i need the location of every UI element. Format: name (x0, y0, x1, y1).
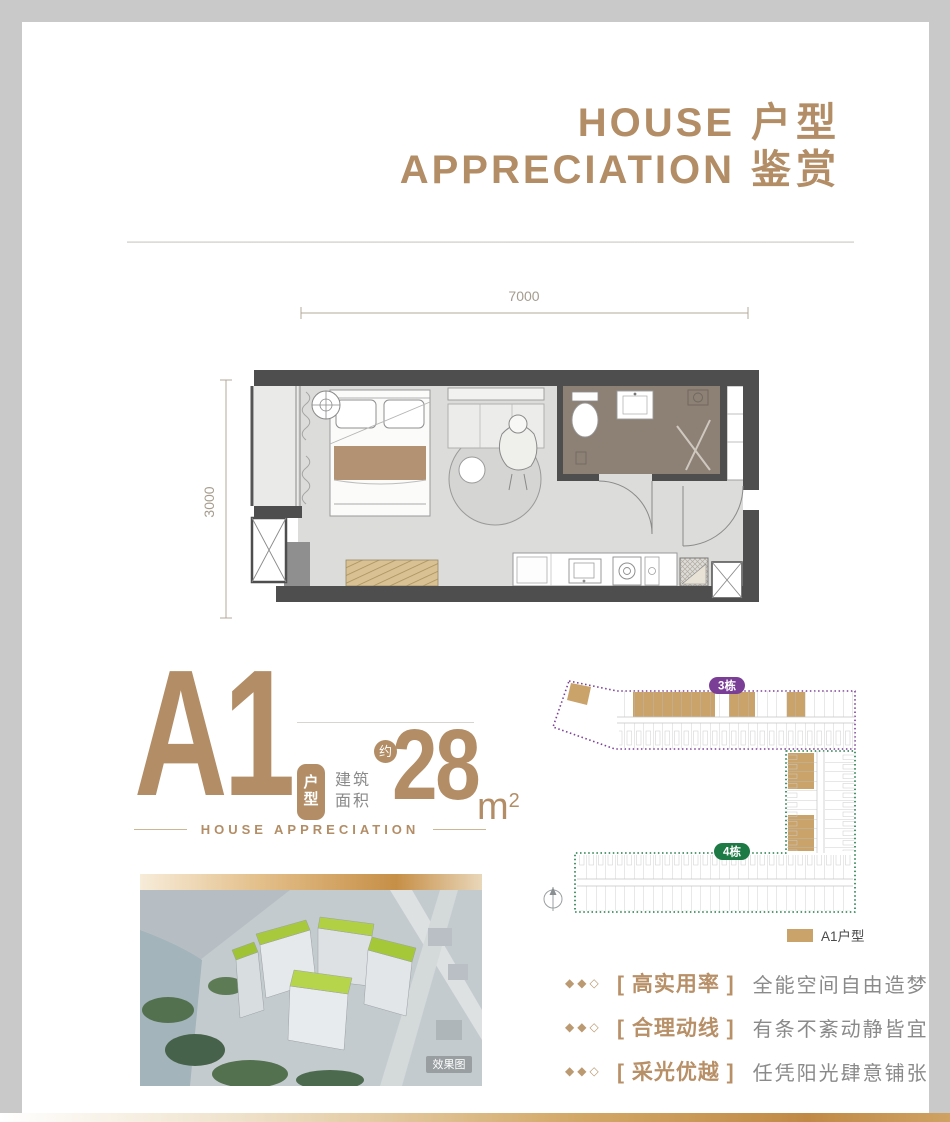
diamond-bullets-icon: ◆◆◇ (565, 1064, 609, 1078)
side-table (459, 457, 485, 483)
unit-tagline: HOUSE APPRECIATION (134, 822, 486, 837)
feature-desc: 有条不紊动静皆宜 (753, 1013, 929, 1042)
tagline-line-left (134, 829, 187, 830)
area-value: 28 (392, 710, 478, 820)
aerial-render-image: 效果图 (140, 874, 482, 1086)
floorplan-drawing: 7000 3000 (180, 274, 825, 624)
brochure-page: HOUSE户型 APPRECIATION鉴赏 (22, 22, 929, 1122)
bathroom-sink (617, 391, 653, 419)
siteplan-drawing: 3栋 4栋 A1户型 (539, 667, 950, 957)
dimension-top (301, 307, 748, 319)
watermark-text: 效果图 (433, 1057, 466, 1071)
building-4 (288, 970, 352, 1050)
legend-label: A1户型 (821, 928, 865, 944)
page-canvas: HOUSE户型 APPRECIATION鉴赏 (0, 0, 950, 1122)
render-gold-bar (140, 874, 482, 890)
feature-desc: 任凭阳光肆意铺张 (753, 1057, 929, 1086)
unit-type-badge: 户型 (297, 764, 325, 820)
ac-platform (252, 518, 286, 582)
tagline-text: HOUSE APPRECIATION (201, 822, 420, 837)
diamond-bullets-icon: ◆◆◇ (565, 1020, 609, 1034)
bed-blanket (334, 446, 426, 480)
kitchen-counter (513, 553, 677, 586)
toilet (572, 392, 598, 437)
feature-row-2: ◆◆◇ [ 合理动线 ] 有条不紊动静皆宜 (565, 1012, 929, 1042)
feature-tag: [ 采光优越 ] (617, 1056, 735, 1086)
unit-type-badge-label: 户型 (303, 774, 319, 808)
building-4-badge-label: 4栋 (723, 845, 741, 859)
dimension-height-label: 3000 (201, 486, 217, 517)
tagline-line-right (433, 829, 486, 830)
title-line-1: HOUSE户型 (400, 100, 841, 147)
aerial-render-scene: 效果图 (140, 890, 482, 1086)
pillow-right (384, 400, 424, 428)
title-en-1: HOUSE (578, 101, 735, 145)
feature-desc: 全能空间自由造梦 (753, 969, 929, 998)
ceiling-fan-icon (312, 391, 340, 419)
building-3-badge-label: 3栋 (718, 679, 736, 693)
area-unit-sup: 2 (509, 790, 520, 812)
unit-info: A1 户型 建筑 面积 约 28 m2 HOUSE APPRECIATION (134, 670, 514, 850)
fridge (517, 557, 547, 583)
shoe-cabinet (680, 558, 708, 586)
building-3-badge: 3栋 (709, 677, 745, 694)
kitchen-sink (569, 559, 601, 583)
compass-icon (544, 887, 562, 911)
feature-tag: [ 合理动线 ] (617, 1012, 735, 1042)
building-3-footprint (553, 681, 855, 749)
title-en-2: APPRECIATION (400, 148, 735, 192)
siteplan-legend: A1户型 (787, 928, 865, 944)
diamond-bullets-icon: ◆◆◇ (565, 976, 609, 990)
feature-list: ◆◆◇ [ 高实用率 ] 全能空间自由造梦 ◆◆◇ [ 合理动线 ] 有条不紊动… (565, 968, 929, 1100)
legend-swatch (787, 929, 813, 942)
area-label-line2: 面积 (335, 791, 371, 812)
bathroom (563, 386, 720, 474)
unit-name: A1 (134, 654, 291, 814)
feature-tag: [ 高实用率 ] (617, 968, 735, 998)
building-4-badge: 4栋 (714, 843, 750, 860)
bed (330, 390, 430, 516)
area-label: 建筑 面积 (335, 770, 371, 812)
entry-shaft (712, 562, 742, 598)
header-divider (127, 241, 854, 243)
feature-row-1: ◆◆◇ [ 高实用率 ] 全能空间自由造梦 (565, 968, 929, 998)
stove (613, 557, 641, 585)
dimension-width-label: 7000 (508, 288, 539, 304)
title-cn-1: 户型 (751, 101, 841, 145)
bench (346, 560, 438, 586)
title-cn-2: 鉴赏 (751, 148, 841, 192)
title-line-2: APPRECIATION鉴赏 (400, 147, 841, 194)
bottom-gold-strip (0, 1113, 950, 1122)
dimension-left (220, 380, 232, 618)
building-4-footprint (575, 751, 855, 912)
area-unit: m2 (477, 782, 520, 826)
page-title: HOUSE户型 APPRECIATION鉴赏 (400, 100, 841, 194)
area-label-line1: 建筑 (335, 770, 371, 791)
balcony-floor (254, 386, 298, 508)
pillow-left (336, 400, 376, 428)
feature-row-3: ◆◆◇ [ 采光优越 ] 任凭阳光肆意铺张 (565, 1056, 929, 1086)
